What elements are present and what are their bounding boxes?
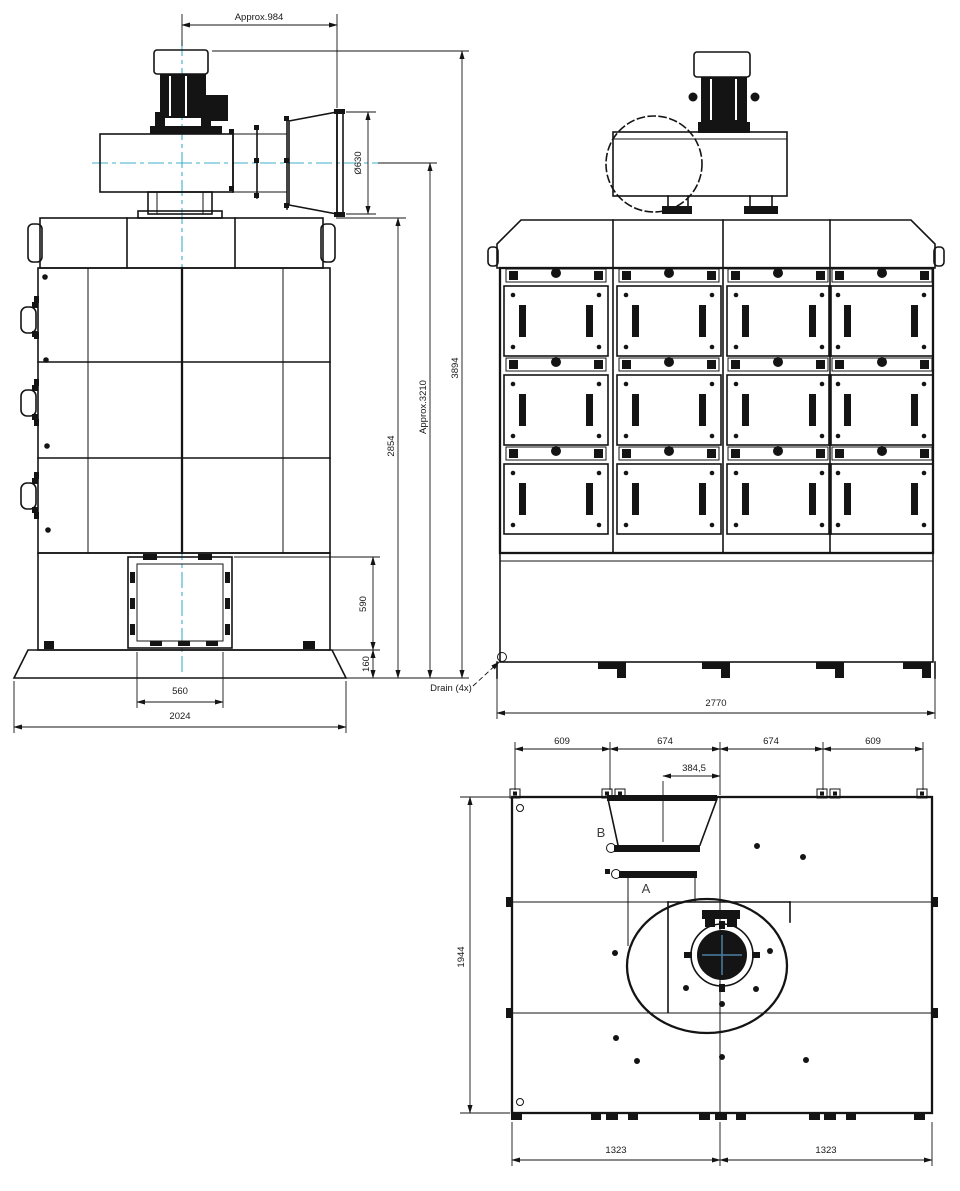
dim-top-span3: 674	[763, 736, 779, 747]
top-drain-port	[517, 1099, 524, 1106]
front-rail	[619, 357, 719, 371]
front-foot	[816, 662, 844, 678]
front-filter-panel	[617, 464, 721, 534]
side-hopper-section	[38, 553, 330, 650]
dim-top-span1: 609	[554, 736, 570, 747]
front-filter-wall	[500, 268, 933, 553]
dim-side-approx-width: Approx.984	[235, 12, 284, 23]
front-filter-panel	[617, 375, 721, 445]
side-motor	[150, 50, 228, 134]
front-filter-panel	[727, 286, 831, 356]
side-fan-pedestal	[138, 192, 222, 218]
front-roof	[488, 220, 944, 268]
top-drain-port	[517, 805, 524, 812]
front-foot	[598, 662, 626, 678]
front-rail	[506, 446, 606, 460]
front-filter-panel	[504, 464, 608, 534]
dim-top-span4: 609	[865, 736, 881, 747]
front-motor	[689, 52, 760, 133]
front-rail	[728, 357, 828, 371]
front-fan-assembly	[606, 52, 787, 214]
front-rail	[619, 446, 719, 460]
side-door-handle	[21, 302, 38, 337]
dim-side-bin-height: 590	[358, 596, 369, 612]
front-rail	[506, 357, 606, 371]
front-rail	[728, 268, 828, 282]
front-filter-panel	[504, 375, 608, 445]
top-flange-b	[614, 845, 700, 852]
dim-side-base-width: 2024	[169, 711, 190, 722]
dim-top-outlet-offset: 384,5	[682, 763, 706, 774]
side-base	[14, 650, 346, 678]
dim-side-outlet-diameter: Ø630	[353, 151, 364, 174]
front-filter-panel	[829, 464, 933, 534]
drawing-page: Approx.984 Ø630 2854 Approx.3210 3894 59…	[0, 0, 960, 1191]
dim-front-overall-width: 2770	[705, 698, 726, 709]
front-skirt	[497, 553, 935, 678]
label-outlet-b: B	[597, 825, 606, 840]
dim-top-depth: 1944	[456, 946, 467, 967]
side-dimensions: Approx.984 Ø630 2854 Approx.3210 3894 59…	[14, 12, 469, 733]
front-foot	[702, 662, 730, 678]
dim-side-base-height: 160	[361, 656, 372, 672]
front-filter-panel	[504, 286, 608, 356]
dim-top-foot-right: 1323	[815, 1145, 836, 1156]
top-outlet-funnel: B A	[597, 795, 717, 946]
front-filter-panel	[617, 286, 721, 356]
side-view: Approx.984 Ø630 2854 Approx.3210 3894 59…	[14, 12, 469, 733]
dim-side-bin-width: 560	[172, 686, 188, 697]
side-door-handle	[21, 478, 38, 513]
front-rail	[832, 357, 932, 371]
front-filter-panel	[727, 375, 831, 445]
label-outlet-a: A	[642, 881, 651, 896]
front-rail	[832, 446, 932, 460]
front-drain-port	[498, 653, 507, 662]
dim-top-span2: 674	[657, 736, 673, 747]
top-flange-a	[619, 871, 697, 878]
front-filter-panel	[829, 375, 933, 445]
front-view: Drain (4x) 2770	[430, 52, 944, 719]
front-dimensions: 2770	[497, 664, 935, 719]
front-filter-panel	[829, 286, 933, 356]
front-rail	[619, 268, 719, 282]
side-door-handle	[21, 385, 38, 420]
side-fan-assembly	[100, 50, 345, 218]
front-rail	[728, 446, 828, 460]
front-filter-panel	[727, 464, 831, 534]
dim-top-foot-left: 1323	[605, 1145, 626, 1156]
front-fan-housing	[613, 132, 787, 196]
front-rail	[506, 268, 606, 282]
side-dust-bin	[128, 554, 232, 648]
dim-side-total-height: 3894	[450, 357, 461, 378]
technical-drawing: Approx.984 Ø630 2854 Approx.3210 3894 59…	[0, 0, 960, 1191]
side-filter-body	[21, 268, 330, 553]
dim-side-body-height: 2854	[386, 435, 397, 456]
dim-side-approx-height: Approx.3210	[418, 380, 429, 434]
front-rail	[832, 268, 932, 282]
front-foot	[903, 662, 931, 678]
drain-label: Drain (4x)	[430, 683, 472, 694]
top-view: B A	[456, 736, 938, 1166]
